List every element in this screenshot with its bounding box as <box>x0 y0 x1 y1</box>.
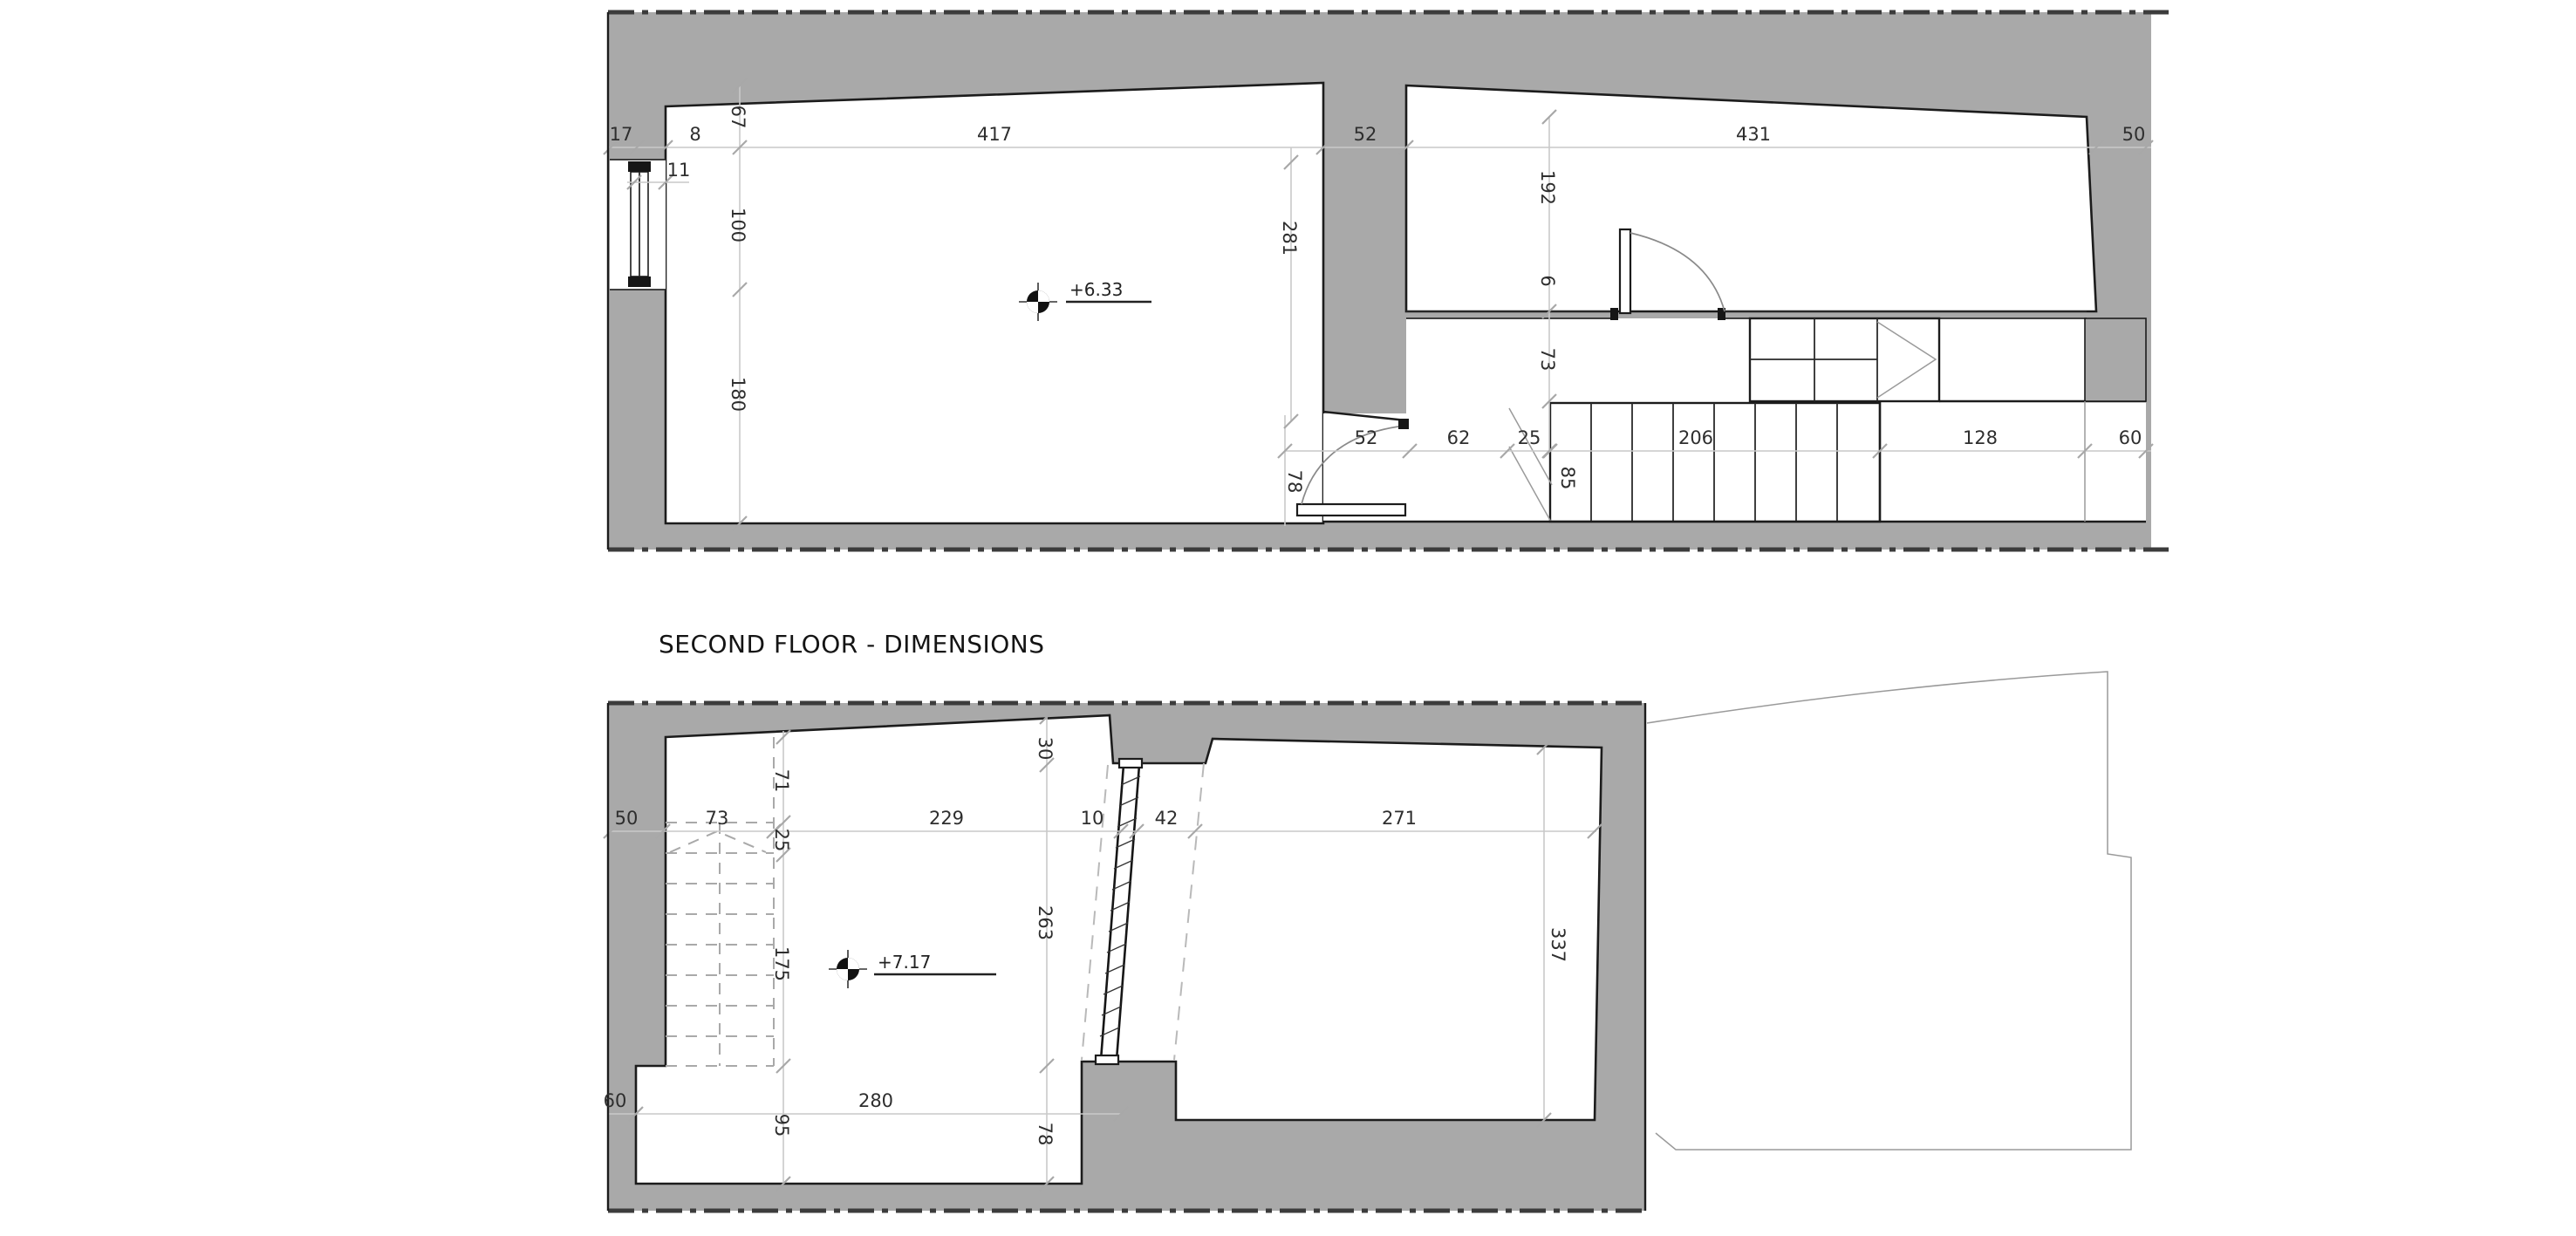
wall-block <box>2085 318 2146 401</box>
dimension-label: 73 <box>1537 348 1558 372</box>
dimension-label: 71 <box>771 769 792 793</box>
stair-hall <box>1406 318 2146 522</box>
second-floor-plan: SECOND FLOOR - DIMENSIONS <box>604 630 2131 1211</box>
floor-plan-drawing: +6.33 1784175243150116710018028119267352… <box>0 0 2576 1236</box>
dimension-label: 52 <box>1355 427 1378 448</box>
dimension-label: 431 <box>1736 124 1771 145</box>
dimension-label: 17 <box>610 124 633 145</box>
dimension-label: 263 <box>1035 905 1056 940</box>
dimension-label: 271 <box>1382 808 1417 829</box>
dimension-label: 60 <box>604 1090 627 1111</box>
dimension-label: 73 <box>706 808 729 829</box>
dimension-label: 229 <box>929 808 964 829</box>
dimension-label: 50 <box>615 808 639 829</box>
window-cap <box>628 277 651 287</box>
dimension-label: 42 <box>1155 808 1179 829</box>
roof-outline <box>1647 672 2131 1150</box>
floor-plan-sheet: +6.33 1784175243150116710018028119267352… <box>0 0 2576 1236</box>
plan-title: SECOND FLOOR - DIMENSIONS <box>659 630 1045 659</box>
dimension-label: 62 <box>1447 427 1471 448</box>
dimension-label: 417 <box>977 124 1012 145</box>
dimension-label: 52 <box>1354 124 1377 145</box>
room-right <box>1406 85 2096 311</box>
dimension-label: 78 <box>1284 470 1305 494</box>
dimension-label: 180 <box>728 377 748 412</box>
door-hinge <box>1398 419 1409 429</box>
dimension-label: 337 <box>1548 927 1568 962</box>
dimension-label: 30 <box>1035 737 1056 761</box>
dimension-label: 25 <box>771 829 792 852</box>
room-left <box>666 83 1323 523</box>
dimension-label: 175 <box>771 946 792 981</box>
dimension-label: 281 <box>1279 221 1300 256</box>
dimension-label: 85 <box>1557 467 1578 490</box>
dimension-label: 10 <box>1081 808 1104 829</box>
level-value: +6.33 <box>1069 279 1123 300</box>
dimension-label: 25 <box>1518 427 1541 448</box>
dimension-label: 6 <box>1537 275 1558 286</box>
dimension-label: 8 <box>689 124 700 145</box>
upper-floor-plan: +6.33 1784175243150116710018028119267352… <box>604 12 2169 550</box>
dimension-label: 206 <box>1678 427 1713 448</box>
door-jamb <box>1610 308 1618 320</box>
level-value: +7.17 <box>878 952 931 973</box>
dimension-label: 128 <box>1963 427 1998 448</box>
dimension-label: 280 <box>858 1090 893 1111</box>
dimension-label: 11 <box>667 160 691 181</box>
door-leaf <box>1620 229 1630 313</box>
dimension-label: 60 <box>2119 427 2142 448</box>
window-cap <box>628 161 651 172</box>
door-leaf <box>1297 504 1405 516</box>
dimension-label: 192 <box>1537 170 1558 205</box>
dimension-label: 100 <box>728 208 748 242</box>
dimension-label: 78 <box>1035 1123 1056 1146</box>
dimension-label: 50 <box>2122 124 2146 145</box>
dimension-label: 67 <box>728 106 748 129</box>
dimension-label: 95 <box>771 1114 792 1137</box>
